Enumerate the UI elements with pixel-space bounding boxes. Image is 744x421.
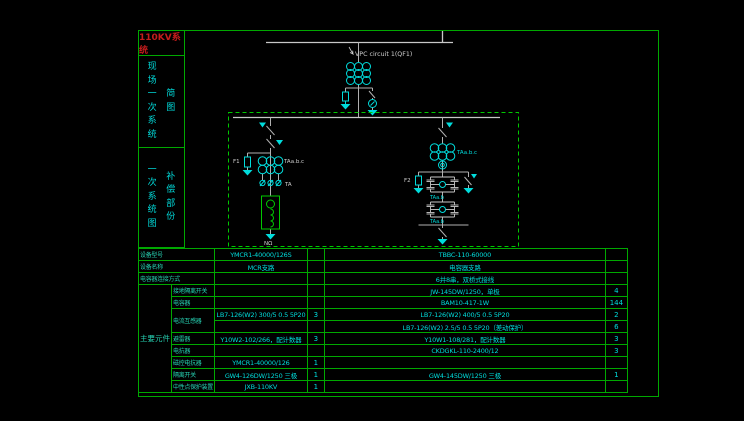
row-label: 电容器连接方式 [139,273,215,285]
mcr-qty: 3 [307,333,324,345]
cap-qty: 6 [605,321,627,333]
cap-qty: 2 [605,309,627,321]
sidebar-block-compensation: 一次系统图 补偿部份 [138,147,185,248]
spec-table: 设备型号 YMCR1-40000/126S TBBC-110-60000 设备名… [138,248,628,393]
cap-qty [605,261,627,273]
sidebar-block2-col1: 一次系统图 [147,164,158,232]
cap-qty [605,381,627,393]
row-label: 隔离开关 [172,369,215,381]
mcr-qty [307,273,324,285]
row-label: 接地隔离开关 [172,285,215,297]
cap-value: GW4-145DW/1250 三极 [324,369,605,381]
sidebar-block1-col2: 简图 [165,88,176,115]
table-row: 设备名称 MCR支路 电容器支路 [139,261,628,273]
mcr-value: YMCR1-40000/126 [214,357,307,369]
cap-qty: 4 [605,285,627,297]
row-label: 磁控电抗器 [172,357,215,369]
mcr-value [214,345,307,357]
table-row: 磁控电抗器 YMCR1-40000/126 1 [139,357,628,369]
mcr-value: GW4-126DW/1250 三极 [214,369,307,381]
cap-value: TBBC-110-60000 [324,249,605,261]
table-row: 设备型号 YMCR1-40000/126S TBBC-110-60000 [139,249,628,261]
cap-value: BAM10-417-1W [324,297,605,309]
row-label: 电容器 [172,297,215,309]
cap-value [324,357,605,369]
sidebar-block2-col2: 补偿部份 [165,171,176,225]
sidebar-title: 110KV系统 [138,30,185,56]
cap-qty [605,249,627,261]
cap-value: JW-145DW/1250，单极 [324,285,605,297]
system-title: 110KV系统 [139,30,184,56]
mcr-value [214,273,307,285]
mcr-qty [307,297,324,309]
mcr-value: JXB-110KV [214,381,307,393]
cap-value: 6并8串，双桥式接线 [324,273,605,285]
row-label: 中性点保护装置 [172,381,215,393]
table-row: 电抗器 CKDGKL-110-2400/12 3 [139,345,628,357]
cap-qty [605,273,627,285]
row-label: 避雷器 [172,333,215,345]
mcr-value: MCR支路 [214,261,307,273]
group-label: 主要元件 [139,285,172,393]
cap-qty: 3 [605,345,627,357]
mcr-value [214,285,307,297]
table-row: 隔离开关 GW4-126DW/1250 三极 1 GW4-145DW/1250 … [139,369,628,381]
cap-qty: 1 [605,369,627,381]
cap-qty: 3 [605,333,627,345]
table-row: 避雷器 Y10W2-102/266，配计数器 3 Y10W1-108/281，配… [139,333,628,345]
mcr-value: Y10W2-102/266，配计数器 [214,333,307,345]
mcr-value: LB7-126(W2) 300/5 0.5 5P20 [214,309,307,321]
mcr-qty [307,249,324,261]
sidebar-block1-col1: 现场一次系统 [147,61,158,142]
mcr-value [214,297,307,309]
mcr-qty: 3 [307,309,324,321]
mcr-qty [307,345,324,357]
cap-value: 电容器支路 [324,261,605,273]
cap-value: LB7-126(W2) 2.5/5 0.5 5P20（差动保护） [324,321,605,333]
mcr-qty [307,261,324,273]
table-row: 电流互感器 LB7-126(W2) 300/5 0.5 5P20 3 LB7-1… [139,309,628,321]
cap-qty [605,357,627,369]
cap-value: LB7-126(W2) 400/5 0.5 5P20 [324,309,605,321]
mcr-value: YMCR1-40000/126S [214,249,307,261]
cad-screenshot: { "colors": { "border_green": "#00a800",… [0,0,744,421]
table-row: 中性点保护装置 JXB-110KV 1 [139,381,628,393]
cap-value: Y10W1-108/281，配计数器 [324,333,605,345]
row-label: 设备型号 [139,249,215,261]
table-row: 电容器 BAM10-417-1W 144 [139,297,628,309]
cap-value: CKDGKL-110-2400/12 [324,345,605,357]
sidebar-block-site-diagram: 现场一次系统 简图 [138,55,185,148]
mcr-qty: 1 [307,381,324,393]
mcr-qty [307,321,324,333]
table-row: 电容器连接方式 6并8串，双桥式接线 [139,273,628,285]
cap-value [324,381,605,393]
mcr-qty: 1 [307,357,324,369]
mcr-qty [307,285,324,297]
table-row: 主要元件 接地隔离开关 JW-145DW/1250，单极 4 [139,285,628,297]
row-label: 电抗器 [172,345,215,357]
cap-qty: 144 [605,297,627,309]
mcr-value [214,321,307,333]
row-label: 设备名称 [139,261,215,273]
row-label: 电流互感器 [172,309,215,333]
mcr-qty: 1 [307,369,324,381]
